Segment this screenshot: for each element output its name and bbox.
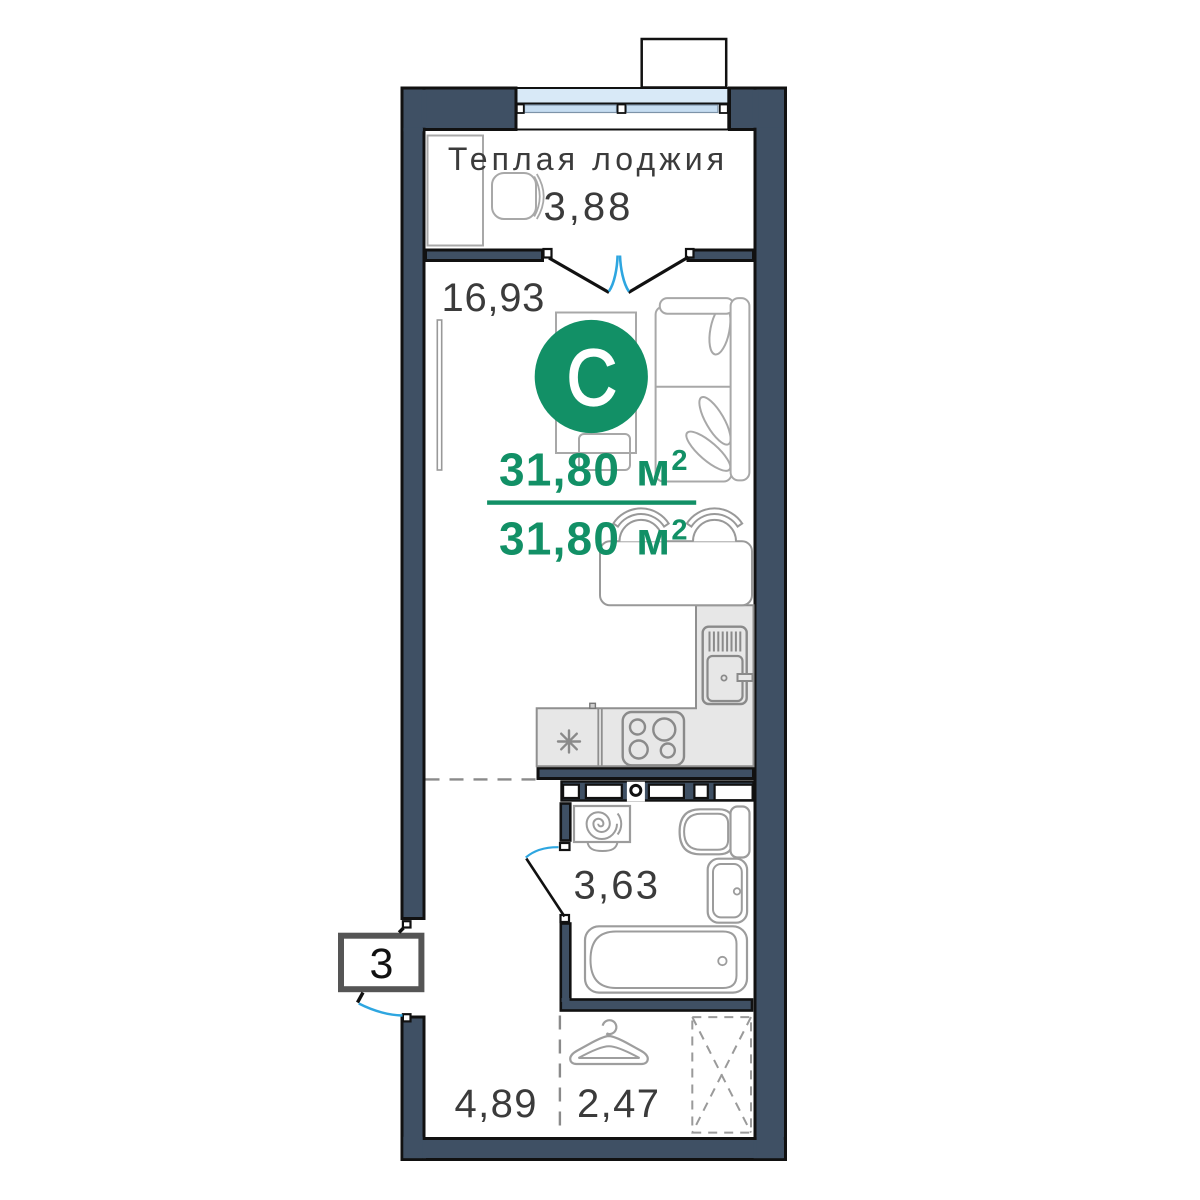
svg-text:Теплая лоджия: Теплая лоджия	[448, 141, 728, 177]
svg-text:3: 3	[370, 940, 394, 988]
svg-text:С: С	[567, 333, 617, 421]
svg-text:16,93: 16,93	[442, 276, 546, 320]
svg-text:3,88: 3,88	[544, 185, 634, 229]
svg-text:3,63: 3,63	[574, 864, 661, 908]
svg-text:31,80 м2: 31,80 м2	[499, 513, 689, 565]
svg-text:31,80 м2: 31,80 м2	[499, 443, 689, 495]
svg-text:2,47: 2,47	[577, 1082, 660, 1126]
svg-text:4,89: 4,89	[455, 1082, 538, 1126]
